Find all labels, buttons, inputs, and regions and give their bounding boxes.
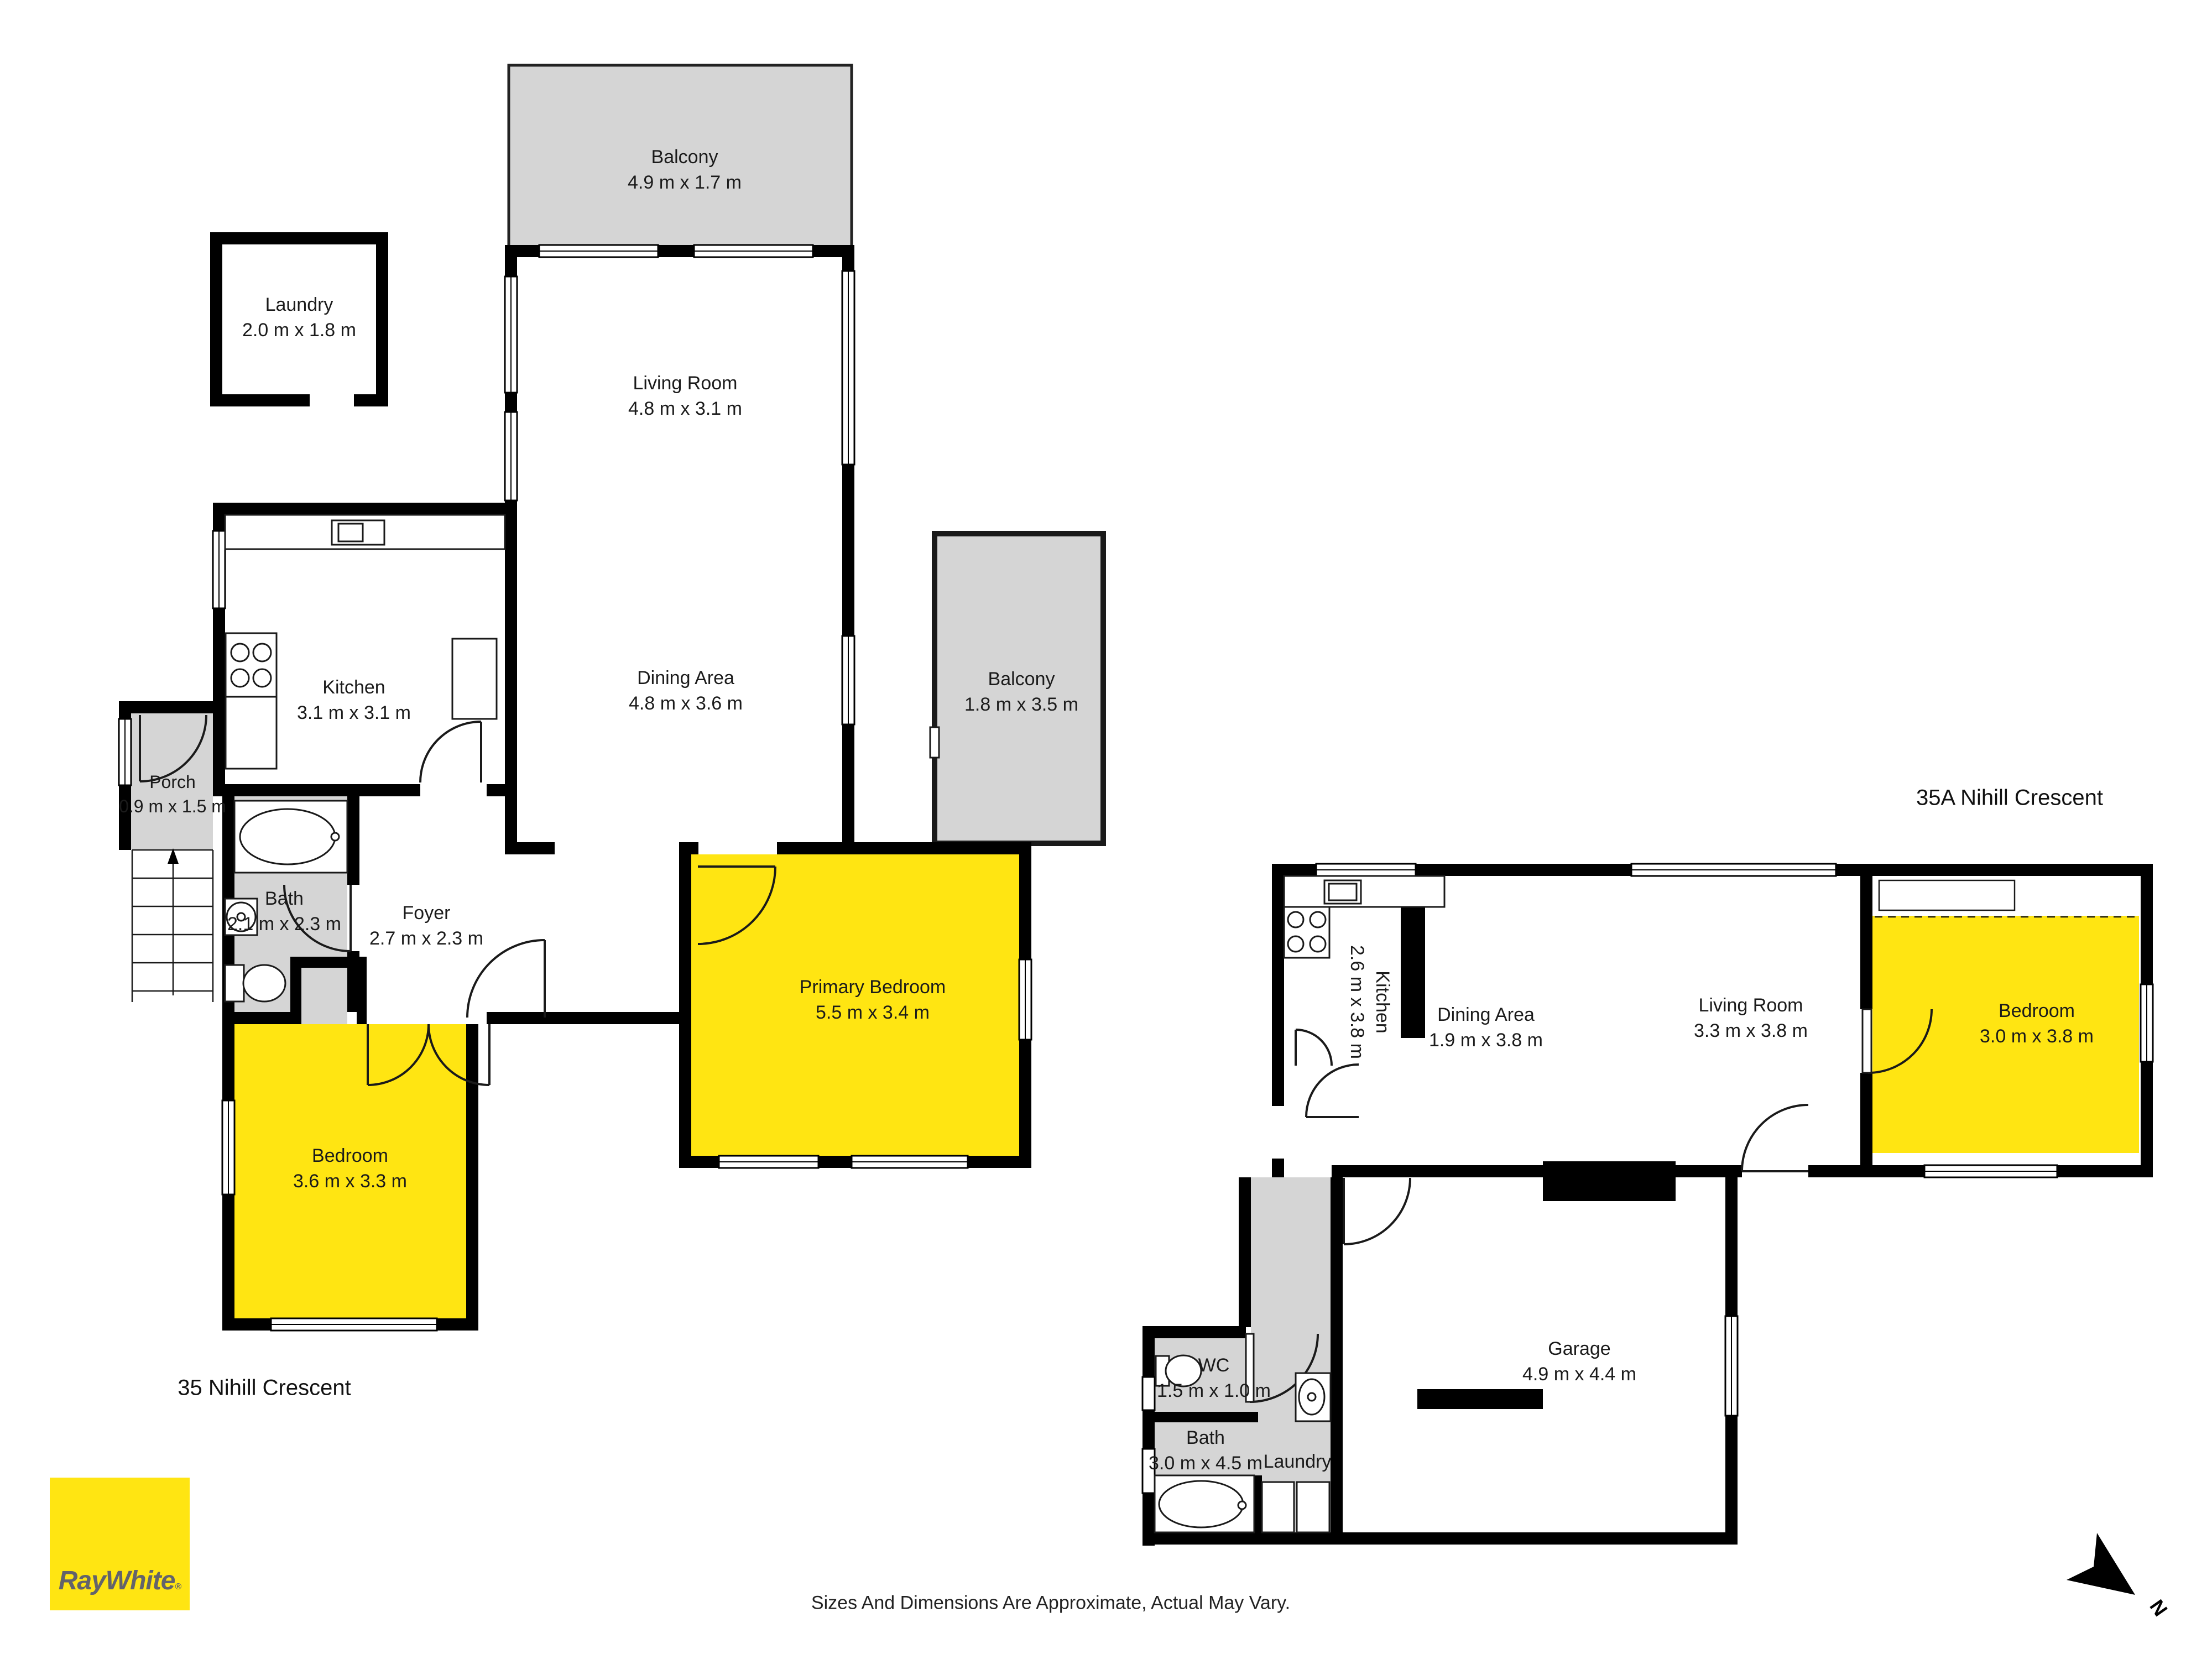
room-label-bedroom-35a: Bedroom 3.0 m x 3.8 m	[1980, 998, 2094, 1049]
raywhite-logo-text: RayWhite®	[59, 1566, 181, 1610]
room-label-garage-35a: Garage 4.9 m x 4.4 m	[1522, 1336, 1636, 1387]
room-label-porch-35: Porch 0.9 m x 1.5 m	[119, 770, 226, 818]
disclaimer-text: Sizes And Dimensions Are Approximate, Ac…	[811, 1593, 1290, 1614]
room-hallway-35a	[1251, 1177, 1331, 1338]
stairs	[132, 850, 213, 1002]
room-label-kitchen-35a: Kitchen 2.6 m x 3.8 m	[1344, 945, 1395, 1059]
dryer	[1297, 1482, 1329, 1532]
room-label-balcony-side-35: Balcony 1.8 m x 3.5 m	[964, 666, 1078, 717]
toilet	[243, 965, 285, 1001]
balcony-door-leaf	[930, 727, 939, 758]
room-label-dining-35: Dining Area 4.8 m x 3.6 m	[629, 665, 743, 716]
raywhite-logo: RayWhite®	[50, 1478, 190, 1610]
toilet-tank	[225, 965, 244, 1001]
address-unit-35: 35 Nihill Crescent	[178, 1376, 351, 1401]
address-unit-35a: 35A Nihill Crescent	[1916, 786, 2103, 811]
room-label-bath-35a: Bath 3.0 m x 4.5 m	[1149, 1425, 1262, 1476]
room-fills	[131, 65, 2139, 1533]
kitchen-counter-35a	[1284, 876, 1444, 907]
room-label-balcony-top-35: Balcony 4.9 m x 1.7 m	[628, 144, 742, 195]
wardrobe-shelf	[1879, 880, 2015, 910]
north-arrow-icon: N	[2067, 1533, 2172, 1620]
stove-icon	[226, 633, 276, 697]
fridge	[452, 639, 497, 719]
room-label-dining-35a: Dining Area 1.9 m x 3.8 m	[1429, 1002, 1543, 1053]
room-label-wc-35a: WC 1.5 m x 1.0 m	[1157, 1353, 1271, 1404]
room-label-bath-35: Bath 2.1 m x 2.3 m	[227, 886, 341, 937]
room-label-foyer-35: Foyer 2.7 m x 2.3 m	[369, 900, 483, 951]
room-label-primary-bedroom-35: Primary Bedroom 5.5 m x 3.4 m	[800, 974, 946, 1025]
registered-mark: ®	[175, 1582, 181, 1592]
room-label-laundry-35a: Laundry	[1264, 1449, 1332, 1474]
floorplan-drawing: N	[0, 0, 2212, 1659]
floorplan-page: N Balcony 4.9 m x 1.7 m Laundry 2.0 m x …	[0, 0, 2212, 1659]
room-label-kitchen-35: Kitchen 3.1 m x 3.1 m	[297, 675, 411, 726]
washer	[1262, 1482, 1294, 1532]
room-label-living-35: Living Room 4.8 m x 3.1 m	[628, 371, 742, 421]
garage-door	[1543, 1161, 1676, 1201]
north-label: N	[2145, 1595, 2172, 1620]
room-label-living-35a: Living Room 3.3 m x 3.8 m	[1694, 993, 1808, 1044]
room-label-laundry-35: Laundry 2.0 m x 1.8 m	[242, 292, 356, 343]
room-label-bedroom-35: Bedroom 3.6 m x 3.3 m	[293, 1143, 407, 1194]
